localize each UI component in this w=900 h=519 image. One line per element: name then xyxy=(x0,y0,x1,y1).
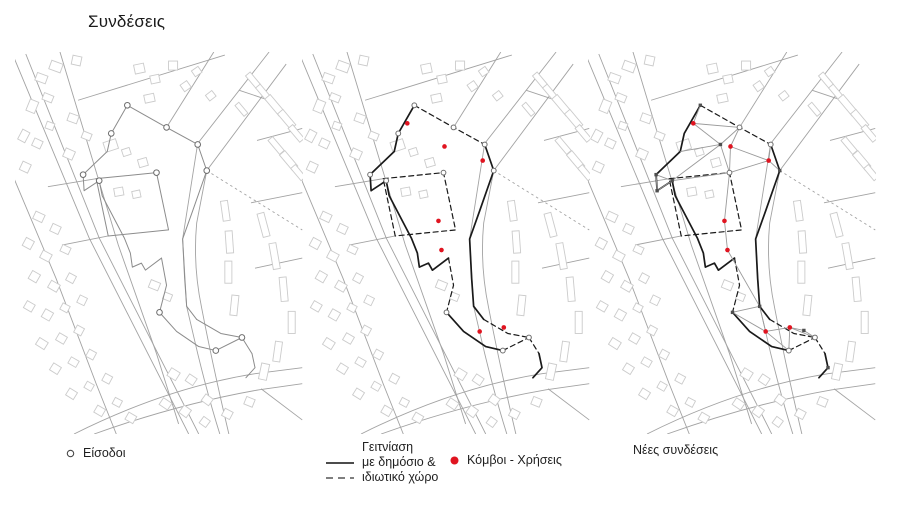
legend-adjacency-row-2: με δημόσιο & xyxy=(326,454,438,469)
figure-canvas: Συνδέσεις Είσοδοι Γειτνίαση με δημόσιο & xyxy=(0,0,900,519)
figure-title: Συνδέσεις xyxy=(88,12,165,32)
legend-adjacency-row-3: ιδιωτικό χώρο xyxy=(326,469,438,484)
map-panel-entrances xyxy=(15,52,303,434)
legend-adjacency-row-1: Γειτνίαση xyxy=(326,439,438,454)
red-node-icon xyxy=(450,456,459,465)
legend-adjacency: Γειτνίαση με δημόσιο & ιδιωτικό χώρο xyxy=(326,439,438,484)
legend-nodes-label: Κόμβοι - Χρήσεις xyxy=(467,453,562,467)
legend-adjacency-label-2: με δημόσιο & xyxy=(362,455,436,469)
legend-entrances: Είσοδοι xyxy=(66,446,125,460)
legend-adjacency-label-3: ιδιωτικό χώρο xyxy=(362,470,438,484)
legend-entrances-label: Είσοδοι xyxy=(83,446,125,460)
map-panel-adjacency xyxy=(302,52,590,434)
legend-adjacency-label-1: Γειτνίαση xyxy=(362,440,413,454)
legend-nodes-uses: Κόμβοι - Χρήσεις xyxy=(450,453,562,467)
legend-new-connections-label: Νέες συνδέσεις xyxy=(633,443,718,457)
entrance-circle-icon xyxy=(66,449,75,458)
map-panel-new-connections xyxy=(588,52,876,434)
legend-new-connections: Νέες συνδέσεις xyxy=(633,443,718,457)
dashed-line-icon xyxy=(326,470,354,484)
solid-line-icon xyxy=(326,455,354,469)
